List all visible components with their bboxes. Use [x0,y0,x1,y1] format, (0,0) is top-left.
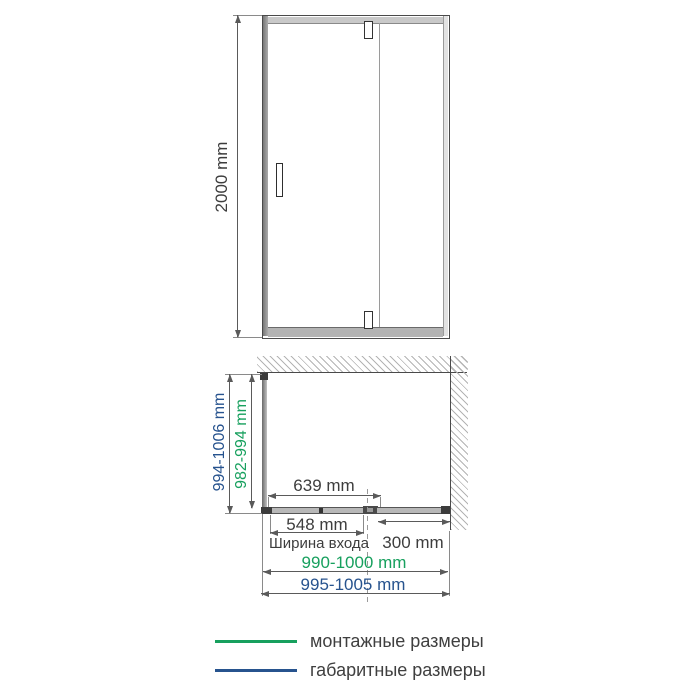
side-panel-plan [262,373,267,507]
plan-bottom-ext-left [262,514,263,596]
front-left-wall-profile [263,16,268,336]
dim300-label: 300 mm [373,533,453,553]
dim548-label: 548 mm [277,515,357,535]
dim995-label: 995-1005 mm [293,575,413,595]
front-right-wall-profile [443,16,448,336]
pivot-block-center [368,508,373,512]
arrow-down-icon [227,506,233,514]
front-bottom-profile [268,327,443,337]
arrow-left-icon [263,569,271,575]
legend-overall-line-swatch [215,669,297,672]
door-panel-plan [272,507,363,514]
arrow-up-icon [235,15,241,23]
dim994-label: 994-1006 mm [211,386,229,498]
height-dim-line [237,15,238,337]
wall-hatch-right [450,356,468,530]
arrow-left-icon [378,519,386,525]
plan-bottom-ext-right [449,531,450,596]
arrow-left-icon [268,493,276,499]
door-handle-icon [276,163,283,197]
arrow-down-icon [249,501,255,509]
legend-overall-label: габаритные размеры [310,660,486,681]
door-hinge-top-icon [364,21,373,39]
height-dim-label: 2000 mm [212,136,232,218]
arrow-right-icon [442,591,450,597]
arrow-down-icon [235,330,241,338]
dim982-line [251,374,252,508]
legend-mounting-line-swatch [215,640,297,643]
fixed-panel-plan [377,507,442,514]
arrow-right-icon [442,519,450,525]
legend-mounting-label: монтажные размеры [310,631,484,652]
front-right-wall-block [441,506,450,514]
dim300-line [378,521,450,522]
arrow-right-icon [373,493,381,499]
dim994-line [229,374,230,513]
arrow-up-icon [249,374,255,382]
front-panel-divider [379,23,380,327]
dim639-label: 639 mm [284,476,364,496]
dim982-label: 982-994 mm [233,394,251,494]
front-frame-outer [262,15,450,339]
front-top-profile [268,17,443,24]
technical-drawing-shower-enclosure: 2000 mm 639 mm 548 mm Ширина входа [0,0,700,700]
door-hinge-bottom-icon [364,311,373,329]
wall-hatch-top [257,356,467,373]
arrow-up-icon [227,374,233,382]
dim990-label: 990-1000 mm [294,553,414,573]
arrow-left-icon [261,591,269,597]
front-left-wall-block [261,507,272,514]
arrow-right-icon [440,569,448,575]
entrance-width-caption: Ширина входа [249,535,389,552]
door-handle-plan [319,508,323,513]
